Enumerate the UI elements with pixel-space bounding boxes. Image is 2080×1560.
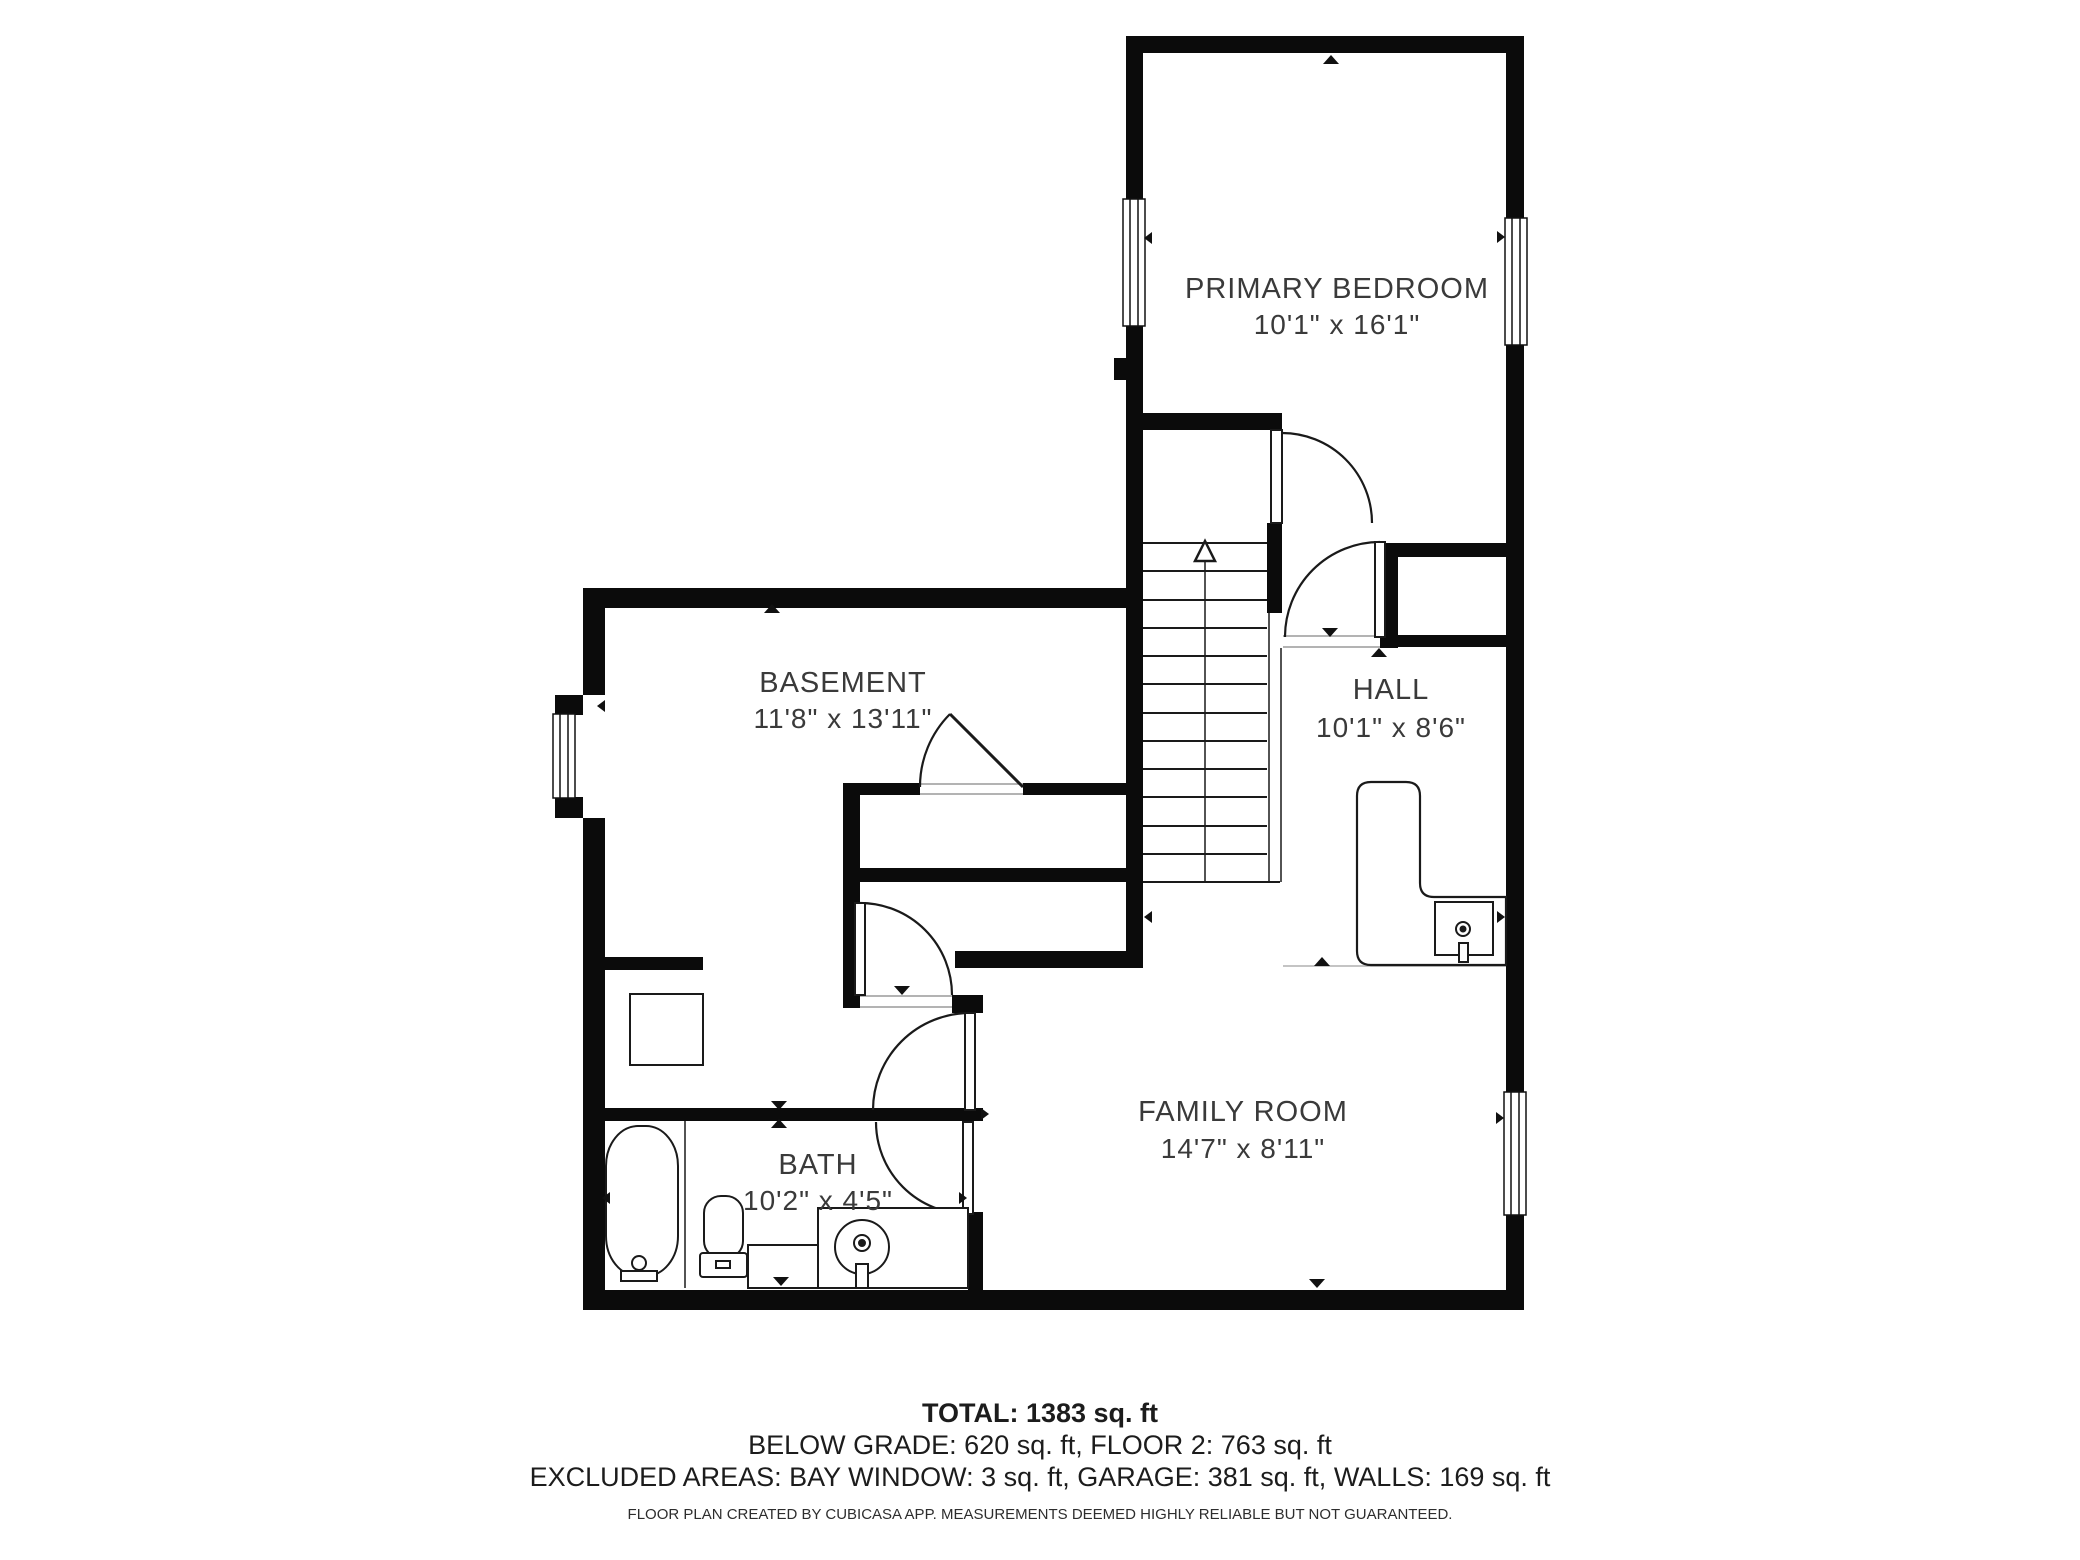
kitchen-faucet-icon	[1459, 943, 1468, 962]
wall-marker	[894, 986, 910, 995]
room-dimensions: 11'8" x 13'11"	[754, 703, 933, 734]
wall-segment	[1126, 53, 1143, 963]
room-name: BATH	[778, 1149, 857, 1181]
wall-segment	[1126, 36, 1524, 53]
wall-segment	[1114, 358, 1126, 380]
wall-segment	[968, 1212, 983, 1300]
wall-segment	[583, 818, 605, 1310]
wall-marker	[1497, 231, 1505, 243]
room-name: FAMILY ROOM	[1138, 1096, 1348, 1128]
wall-segment	[843, 868, 1143, 882]
wall-segment	[1398, 635, 1506, 647]
room-label-primary-bedroom: PRIMARY BEDROOM 10'1" x 16'1"	[1185, 273, 1489, 340]
water-heater	[630, 994, 703, 1065]
threshold-basement-door	[920, 784, 1023, 794]
room-labels: PRIMARY BEDROOM 10'1" x 16'1" BASEMENT 1…	[743, 273, 1489, 1216]
threshold-closet-door	[860, 996, 952, 1007]
wall-marker	[1309, 1279, 1325, 1288]
wall-segment	[1023, 783, 1143, 795]
bathtub	[606, 1126, 678, 1281]
wall-segment	[555, 695, 583, 715]
wall-segment	[555, 797, 583, 818]
room-label-family-room: FAMILY ROOM 14'7" x 8'11"	[1138, 1096, 1348, 1164]
wall-markers	[597, 55, 1505, 1288]
room-dimensions: 10'2" x 4'5"	[743, 1185, 893, 1216]
wall-marker	[1496, 1112, 1504, 1124]
room-name: PRIMARY BEDROOM	[1185, 273, 1489, 305]
wall-segment	[1397, 543, 1506, 557]
wall-segment	[583, 588, 1143, 608]
wall-marker	[1371, 648, 1387, 657]
door-basement	[920, 714, 1023, 787]
fixtures	[606, 782, 1506, 1288]
wall-marker	[1144, 911, 1152, 923]
wall-segment	[583, 588, 605, 695]
wall-segment	[605, 1108, 983, 1121]
wall-marker	[981, 1108, 989, 1120]
sink-faucet-icon	[856, 1264, 868, 1288]
wall-marker	[597, 700, 605, 712]
door-family-room	[873, 1013, 975, 1110]
window-bedroom-left	[1123, 199, 1145, 326]
area-breakdown-text: BELOW GRADE: 620 sq. ft, FLOOR 2: 763 sq…	[0, 1430, 2080, 1461]
floor-plan-drawing: PRIMARY BEDROOM 10'1" x 16'1" BASEMENT 1…	[0, 0, 2080, 1560]
kitchenette-counter	[1357, 782, 1506, 965]
vanity-sink	[818, 1208, 968, 1288]
disclaimer-text: FLOOR PLAN CREATED BY CUBICASA APP. MEAS…	[0, 1506, 2080, 1523]
door-hall	[1285, 542, 1385, 637]
wall-marker	[1314, 957, 1330, 966]
walls	[555, 36, 1524, 1310]
door-primary-bedroom	[1271, 430, 1372, 523]
room-dimensions: 10'1" x 16'1"	[1254, 309, 1421, 340]
window-bedroom-right	[1505, 218, 1527, 345]
tub-faucet-icon	[621, 1271, 657, 1281]
window-basement-bay	[553, 714, 575, 798]
threshold-hall-stairs	[1283, 636, 1380, 647]
floor-plan-page: PRIMARY BEDROOM 10'1" x 16'1" BASEMENT 1…	[0, 0, 2080, 1560]
room-name: HALL	[1353, 674, 1430, 706]
wall-segment	[955, 951, 1143, 968]
room-dimensions: 10'1" x 8'6"	[1316, 712, 1466, 743]
door-closet	[855, 903, 952, 995]
toilet	[700, 1196, 747, 1277]
wall-segment	[605, 957, 703, 970]
room-dimensions: 14'7" x 8'11"	[1161, 1133, 1325, 1164]
tub-faucet-icon	[632, 1256, 646, 1270]
wall-segment	[1143, 413, 1282, 430]
wall-segment	[583, 1290, 1524, 1310]
wall-segment	[1267, 523, 1282, 613]
room-name: BASEMENT	[759, 667, 927, 699]
total-area-text: TOTAL: 1383 sq. ft	[0, 1398, 2080, 1429]
wall-segment	[952, 995, 983, 1013]
wall-marker	[1323, 55, 1339, 64]
window-family-room	[1504, 1092, 1526, 1215]
kitchen-sink	[1461, 927, 1466, 932]
room-label-hall: HALL 10'1" x 8'6"	[1316, 674, 1466, 743]
stairs	[1143, 541, 1281, 882]
room-label-bath: BATH 10'2" x 4'5"	[743, 1149, 893, 1216]
room-label-basement: BASEMENT 11'8" x 13'11"	[754, 667, 933, 734]
excluded-areas-text: EXCLUDED AREAS: BAY WINDOW: 3 sq. ft, GA…	[0, 1462, 2080, 1493]
